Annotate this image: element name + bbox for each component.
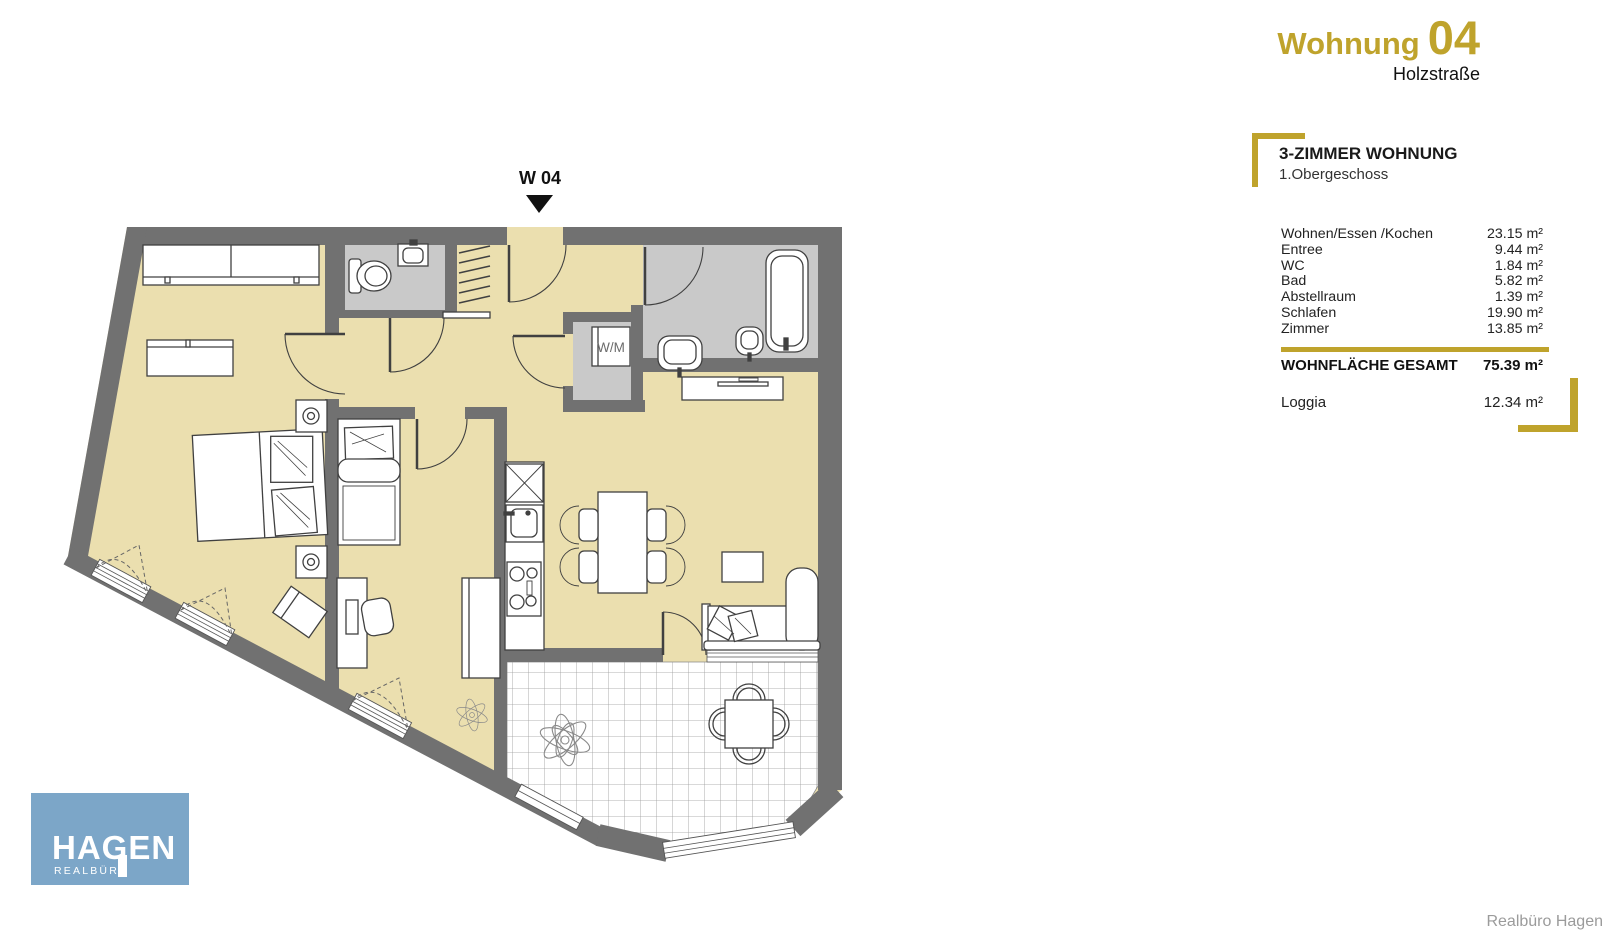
single-bed [338, 419, 400, 545]
side-table [722, 552, 763, 582]
room-row: Zimmer 13.85 m² [1281, 322, 1543, 338]
washing-machine-label: W/M [597, 340, 625, 355]
total-area: 75.39 m² [1483, 357, 1543, 374]
room-label: Zimmer [1281, 322, 1329, 338]
room-label: Abstellraum [1281, 290, 1356, 306]
logo-brand-text: HAGEN [52, 829, 176, 867]
hagen-logo: HAGEN REALBÜRO [31, 793, 189, 885]
top-wall-left [127, 227, 507, 245]
gold-divider-rule [1281, 347, 1549, 352]
room-label: Schlafen [1281, 306, 1336, 322]
room-area: 19.90 m² [1487, 306, 1543, 322]
room-list: Wohnen/Essen /Kochen 23.15 m² Entree 9.4… [1281, 227, 1543, 338]
room-label: Bad [1281, 274, 1306, 290]
wardrobe-top [143, 245, 319, 285]
wardrobe-side [147, 340, 233, 376]
bathtub-icon [766, 250, 808, 352]
entree-shelf [443, 312, 490, 318]
page-title: Wohnung04 [1180, 14, 1480, 61]
stove-icon [507, 562, 541, 616]
room-row: Wohnen/Essen /Kochen 23.15 m² [1281, 227, 1543, 243]
top-wall-right [563, 227, 842, 245]
loggia-label: Loggia [1281, 394, 1326, 411]
room-label: Wohnen/Essen /Kochen [1281, 227, 1433, 243]
apartment-type-title: 3-ZIMMER WOHNUNG [1279, 144, 1457, 164]
room-area: 23.15 m² [1487, 227, 1543, 243]
gold-bracket-bottom-right [1518, 378, 1578, 432]
room-row: WC 1.84 m² [1281, 259, 1543, 275]
kitchen [504, 462, 544, 650]
title-subtitle: Holzstraße [1180, 65, 1480, 83]
room-row: Bad 5.82 m² [1281, 274, 1543, 290]
room-label: Entree [1281, 243, 1323, 259]
floor-label: 1.Obergeschoss [1279, 166, 1388, 183]
double-bed [192, 429, 327, 542]
unit-marker-label: W 04 [519, 168, 561, 188]
room-area: 1.39 m² [1495, 290, 1543, 306]
flyer-page: W 04 W/M Wohnung04 Holzstraße 3-ZIMMER W… [0, 0, 1615, 946]
title-number: 04 [1428, 11, 1480, 64]
room-area: 13.85 m² [1487, 322, 1543, 338]
wc-toilet-icon [349, 259, 391, 293]
loggia-table [725, 700, 773, 748]
desk-chair [360, 597, 395, 637]
wc-basin-icon [398, 240, 428, 266]
room-label: WC [1281, 259, 1305, 275]
room-row: Abstellraum 1.39 m² [1281, 290, 1543, 306]
nightstand-1 [296, 400, 327, 432]
room-row: Schlafen 19.90 m² [1281, 306, 1543, 322]
right-wall [818, 227, 842, 790]
zimmer-wardrobe [462, 578, 500, 678]
logo-division-text: REALBÜRO [54, 865, 129, 877]
sideboard [682, 377, 783, 400]
total-row: WOHNFLÄCHE GESAMT 75.39 m² [1281, 357, 1543, 374]
sink-icon [504, 505, 543, 542]
room-row: Entree 9.44 m² [1281, 243, 1543, 259]
loggia-row: Loggia 12.34 m² [1281, 394, 1543, 411]
desk [337, 578, 367, 668]
room-area: 1.84 m² [1495, 259, 1543, 275]
footer-credit: Realbüro Hagen [1486, 913, 1603, 931]
room-area: 5.82 m² [1495, 274, 1543, 290]
floor-plan: W 04 W/M [0, 0, 1615, 946]
title-word: Wohnung [1277, 26, 1419, 61]
unit-marker-arrow-icon [526, 195, 553, 213]
total-label: WOHNFLÄCHE GESAMT [1281, 357, 1458, 374]
title-block: Wohnung04 Holzstraße [1180, 14, 1480, 83]
dining-table [598, 492, 647, 593]
nightstand-2 [296, 546, 327, 578]
room-area: 9.44 m² [1495, 243, 1543, 259]
fridge-icon [506, 464, 543, 502]
